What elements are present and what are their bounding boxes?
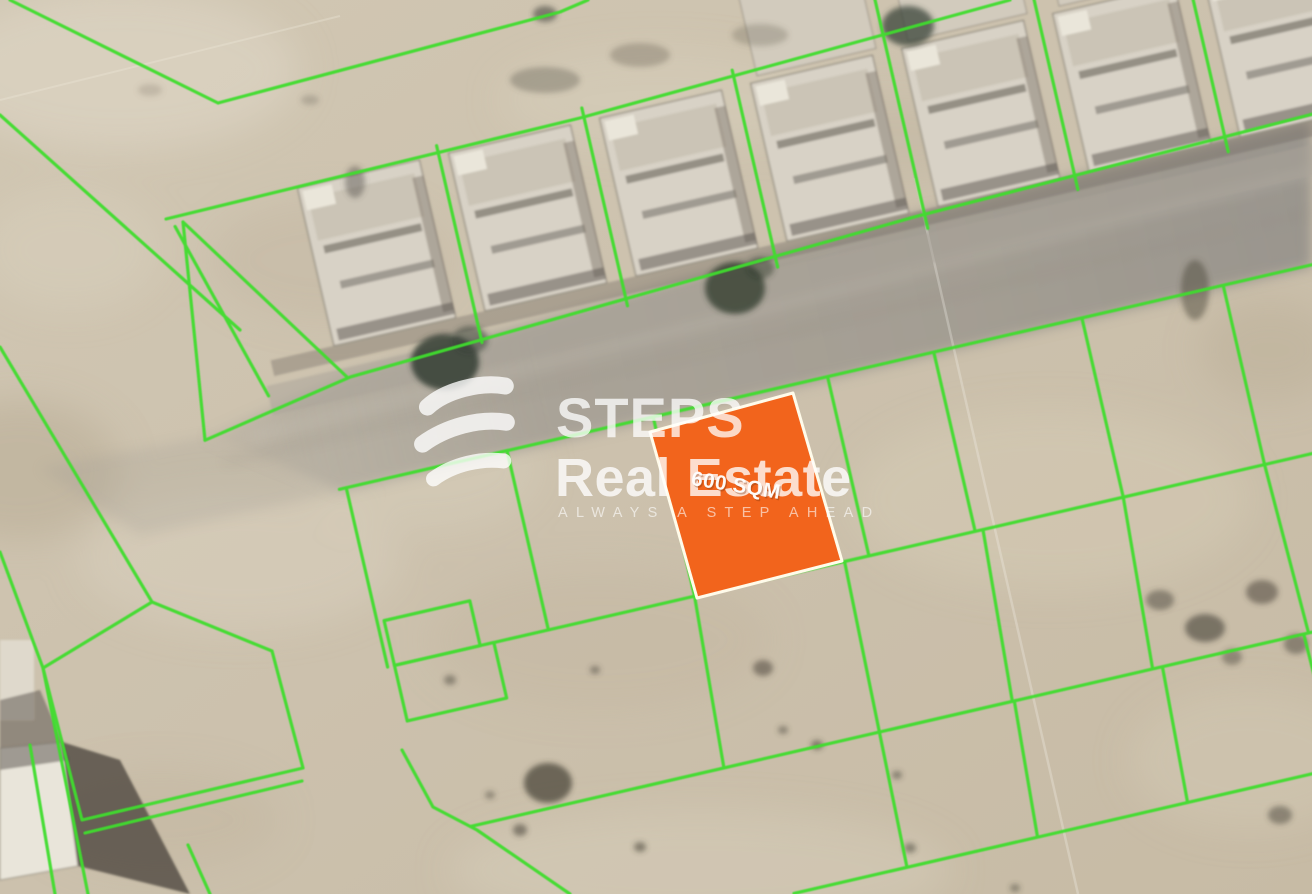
watermark-tagline: ALWAYS A STEP AHEAD <box>558 505 880 521</box>
satellite-map[interactable]: STEPS Real Estate ALWAYS A STEP AHEAD 60… <box>0 0 1312 894</box>
satellite-map-image[interactable]: STEPS Real Estate ALWAYS A STEP AHEAD 60… <box>0 0 1312 894</box>
watermark-brand-top: STEPS <box>556 386 745 449</box>
